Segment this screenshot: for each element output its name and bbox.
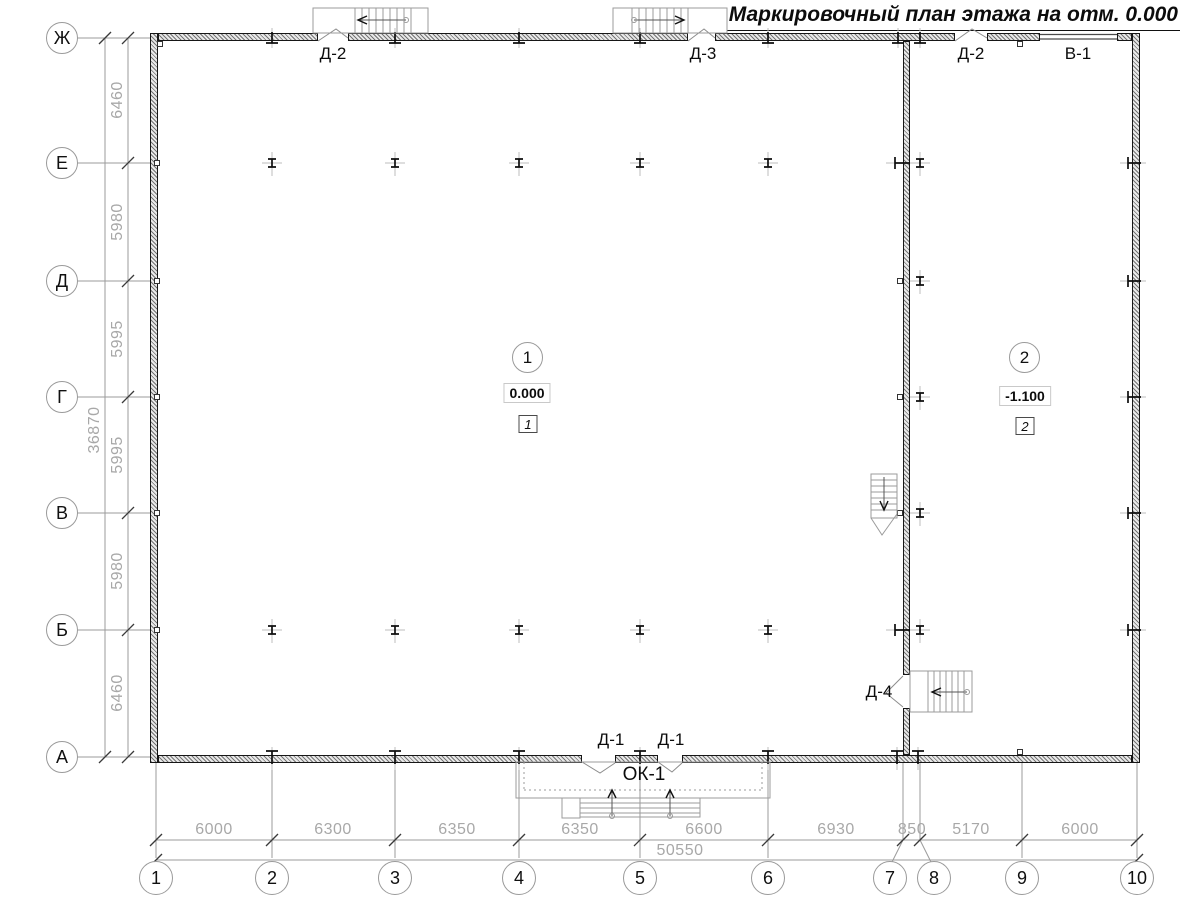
col-axis-1: 1 [139,861,173,895]
col-axis-4: 4 [502,861,536,895]
row-axis-g: Г [46,381,78,413]
room-1-zone: 1 [519,415,538,433]
dim-bottom-3: 6350 [438,821,476,839]
dim-bottom-8: 5170 [952,821,990,839]
col-axis-8: 8 [917,861,951,895]
dim-left-2: 5980 [109,203,127,241]
door-label-d1-right: Д-1 [658,730,685,750]
door-label-d1-left: Д-1 [598,730,625,750]
door-label-d2-right: Д-2 [958,44,985,64]
row-grid-lines [77,38,150,757]
wall-column-ticks [155,28,1147,770]
dim-left-total: 36870 [86,407,104,454]
col-axis-10: 10 [1120,861,1154,895]
dim-bottom-6: 6930 [817,821,855,839]
door-label-d3: Д-3 [690,44,717,64]
col-axis-6: 6 [751,861,785,895]
room-1-number: 1 [512,342,543,373]
column-marks [262,152,930,643]
dim-left-5: 5980 [109,552,127,590]
col-axis-9: 9 [1005,861,1039,895]
dim-bottom-total: 50550 [657,842,704,860]
row-axis-v: В [46,497,78,529]
floor-plan: Маркировочный план этажа на отм. 0.000 [0,0,1200,900]
room-2-zone: 2 [1016,417,1035,435]
room-2-number: 2 [1009,342,1040,373]
row-axis-zh: Ж [46,22,78,54]
dim-left-1: 6460 [109,81,127,119]
dim-left-4: 5995 [109,436,127,474]
row-axis-b: Б [46,614,78,646]
dim-bottom-1: 6000 [195,821,233,839]
dim-bottom-4: 6350 [561,821,599,839]
row-axis-e: Е [46,147,78,179]
dim-left-6: 6460 [109,674,127,712]
gate-label-v1: В-1 [1065,44,1091,64]
stair-bottom-right-icon [910,671,972,712]
stair-top-left-icon [313,8,428,33]
stair-top-middle-icon [613,8,727,33]
dimension-ticks-bottom [150,834,1143,866]
dim-left-3: 5995 [109,320,127,358]
room-2-elevation: -1.100 [999,386,1051,406]
dim-bottom-9: 6000 [1061,821,1099,839]
room-1-elevation: 0.000 [503,383,550,403]
col-axis-7: 7 [873,861,907,895]
plan-linework [0,0,1200,900]
dim-bottom-5: 6600 [685,821,723,839]
stair-middle-icon [871,474,897,535]
dim-bottom-2: 6300 [314,821,352,839]
col-axis-5: 5 [623,861,657,895]
row-axis-d: Д [46,265,78,297]
col-axis-3: 3 [378,861,412,895]
window-label-ok1: ОК-1 [623,764,666,786]
door-label-d4: Д-4 [866,682,893,702]
dim-bottom-7: 850 [898,821,926,839]
door-label-d2-left: Д-2 [320,44,347,64]
gate-v1-icon [1040,35,1117,40]
door-swing-icons [318,29,987,773]
row-axis-a: А [46,741,78,773]
col-axis-2: 2 [255,861,289,895]
